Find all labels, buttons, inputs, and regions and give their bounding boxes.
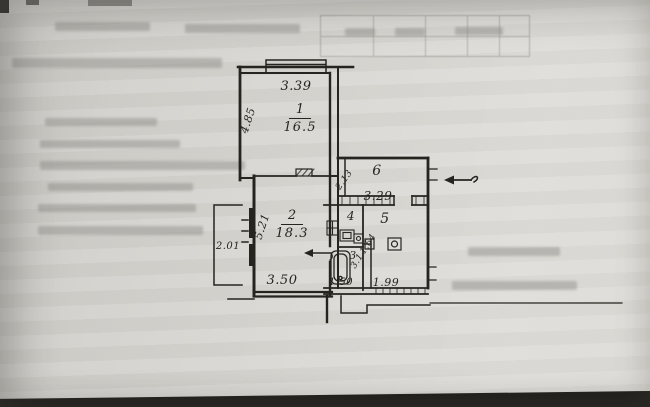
stove-icon	[327, 221, 338, 235]
room1-label: 1 16.5	[278, 100, 322, 134]
room4-number: 4	[344, 210, 358, 222]
direction-arrow	[444, 176, 477, 185]
room6-number: 6	[368, 164, 386, 178]
room5-width-dim: 1.99	[368, 277, 404, 288]
entry-arrow	[304, 249, 332, 260]
room2-number: 2	[281, 209, 303, 225]
floor-plan-drawing	[0, 0, 650, 407]
appliance-icon	[388, 238, 401, 250]
room2-label: 2 18.3	[268, 206, 316, 240]
stair-landing	[228, 296, 622, 322]
scanned-floor-plan-photo: 3.39 1 16.5 4.85 2 18.3 5.21 3.50 2.01 6…	[0, 0, 650, 407]
balcony-dim: 2.01	[213, 242, 243, 252]
room1-number: 1	[289, 103, 311, 119]
room3-width-dim: 1.50	[326, 278, 356, 288]
room1-width-dim: 3.39	[272, 80, 320, 93]
room2-area: 18.3	[268, 225, 316, 241]
sink-icon	[340, 230, 354, 241]
room6-width-dim: 3.29	[356, 190, 400, 202]
washbasin-icon	[354, 234, 363, 243]
photo-edge-mark	[88, 0, 132, 6]
room2-width-dim: 3.50	[258, 274, 306, 287]
room1-area: 16.5	[278, 119, 322, 135]
photo-edge-mark	[0, 0, 9, 13]
room5-number: 5	[377, 212, 393, 226]
photo-edge-mark	[26, 0, 39, 5]
walls	[238, 67, 428, 297]
